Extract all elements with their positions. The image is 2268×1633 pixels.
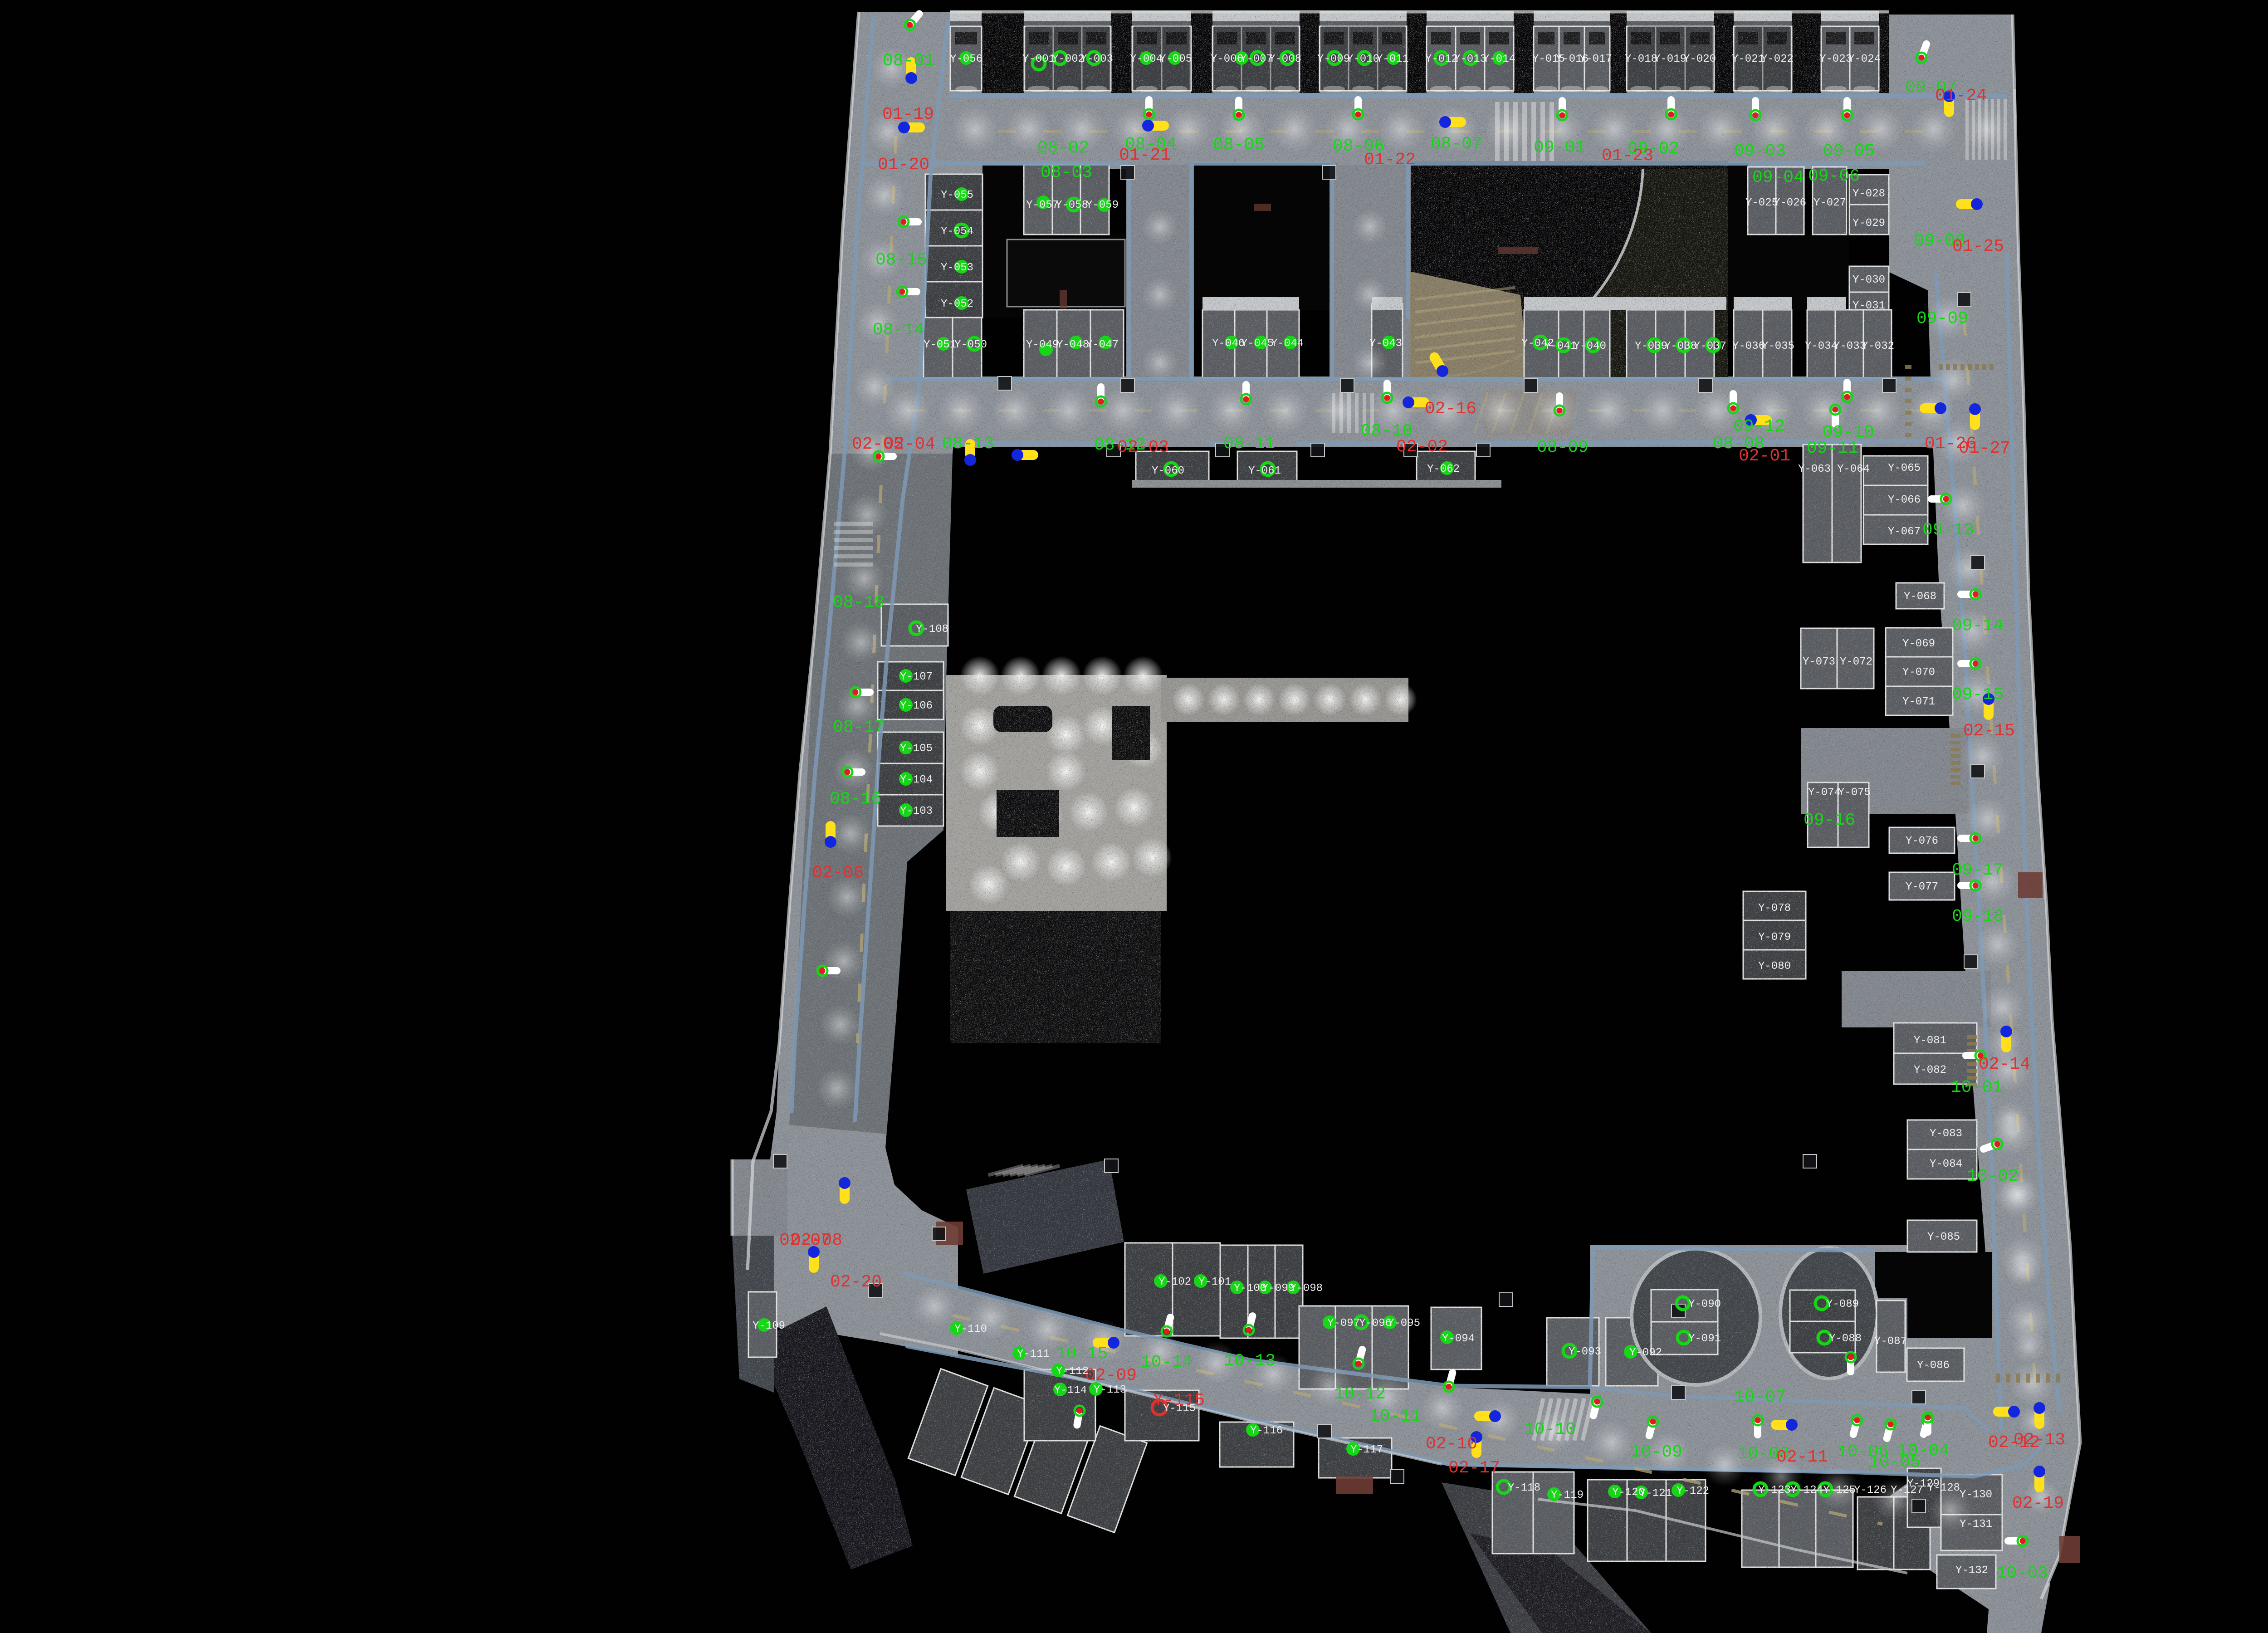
svg-text:01-25: 01-25 [1952, 237, 2004, 256]
svg-text:Y-038: Y-038 [1664, 340, 1697, 352]
svg-text:Y-088: Y-088 [1829, 1333, 1862, 1345]
svg-text:02-08: 02-08 [791, 1231, 842, 1250]
svg-text:Y-090: Y-090 [1688, 1298, 1721, 1310]
svg-text:Y-077: Y-077 [1906, 881, 1938, 893]
svg-text:10-11: 10-11 [1369, 1407, 1421, 1426]
svg-text:Y-037: Y-037 [1694, 340, 1726, 352]
svg-text:Y-084: Y-084 [1930, 1158, 1962, 1170]
svg-text:Y-005: Y-005 [1159, 53, 1192, 65]
svg-text:Y-044: Y-044 [1271, 337, 1304, 350]
svg-text:09-18: 09-18 [1952, 907, 2004, 926]
svg-text:Y-024: Y-024 [1848, 53, 1881, 65]
svg-text:Y-103: Y-103 [900, 805, 933, 817]
svg-text:02-13: 02-13 [2014, 1430, 2065, 1450]
svg-text:Y-126: Y-126 [1854, 1484, 1887, 1496]
svg-text:Y-056: Y-056 [950, 53, 982, 65]
svg-text:Y-014: Y-014 [1483, 53, 1515, 65]
svg-text:08-07: 08-07 [1431, 134, 1482, 154]
svg-text:Y-069: Y-069 [1902, 638, 1935, 650]
svg-text:08-02: 08-02 [1037, 138, 1089, 158]
svg-text:Y-121: Y-121 [1639, 1487, 1672, 1500]
svg-text:02-19: 02-19 [2012, 1494, 2064, 1513]
svg-text:09-15: 09-15 [1952, 685, 2004, 704]
svg-text:02-17: 02-17 [1448, 1458, 1500, 1478]
svg-text:Y-029: Y-029 [1853, 217, 1885, 230]
svg-text:Y-089: Y-089 [1826, 1298, 1859, 1310]
svg-text:Y-013: Y-013 [1454, 53, 1486, 65]
svg-text:Y-113: Y-113 [1094, 1384, 1126, 1396]
svg-text:Y-017: Y-017 [1579, 53, 1612, 65]
svg-text:02-16: 02-16 [1425, 399, 1476, 419]
svg-text:Y-106: Y-106 [900, 700, 933, 712]
svg-text:10-07: 10-07 [1734, 1388, 1786, 1407]
svg-text:Y-081: Y-081 [1914, 1035, 1946, 1047]
svg-text:Y-061: Y-061 [1248, 465, 1281, 477]
svg-text:Y-114: Y-114 [1054, 1384, 1087, 1397]
svg-text:Y-085: Y-085 [1927, 1231, 1960, 1243]
svg-text:09-06: 09-06 [1808, 166, 1860, 186]
svg-text:10-10: 10-10 [1524, 1420, 1576, 1439]
svg-text:Y-020: Y-020 [1683, 53, 1716, 65]
svg-text:Y-054: Y-054 [941, 225, 973, 238]
svg-text:Y-032: Y-032 [1862, 340, 1894, 352]
svg-text:Y-047: Y-047 [1086, 339, 1119, 351]
svg-text:Y-003: Y-003 [1080, 53, 1113, 65]
svg-text:Y-112: Y-112 [1056, 1365, 1089, 1378]
svg-text:01-22: 01-22 [1364, 150, 1416, 170]
svg-text:Y-104: Y-104 [900, 774, 933, 786]
svg-text:Y-079: Y-079 [1758, 931, 1791, 944]
svg-text:Y-101: Y-101 [1198, 1276, 1231, 1288]
svg-text:Y-078: Y-078 [1758, 902, 1791, 914]
svg-text:10-14: 10-14 [1141, 1353, 1193, 1372]
svg-text:Y-130: Y-130 [1960, 1489, 1992, 1501]
svg-text:Y-055: Y-055 [941, 189, 973, 201]
svg-text:09-05: 09-05 [1823, 142, 1875, 161]
svg-text:Y-009: Y-009 [1317, 53, 1350, 65]
svg-text:08-03: 08-03 [1041, 163, 1092, 182]
svg-text:Y-019: Y-019 [1654, 53, 1686, 65]
svg-text:Y-095: Y-095 [1388, 1317, 1420, 1330]
svg-text:Y-048: Y-048 [1056, 339, 1089, 351]
svg-text:01-27: 01-27 [1959, 439, 2010, 458]
svg-text:09-03: 09-03 [1734, 142, 1786, 161]
svg-text:Y-093: Y-093 [1569, 1346, 1601, 1358]
svg-text:Y-008: Y-008 [1269, 53, 1301, 65]
svg-text:09-11: 09-11 [1807, 439, 1858, 458]
svg-text:Y-027: Y-027 [1813, 197, 1846, 209]
svg-text:Y-057: Y-057 [1026, 199, 1059, 211]
svg-text:09-17: 09-17 [1952, 861, 2004, 880]
svg-text:Y-011: Y-011 [1376, 53, 1409, 65]
svg-text:Y-041: Y-041 [1544, 340, 1577, 352]
svg-text:Y-066: Y-066 [1888, 494, 1921, 506]
svg-text:Y-028: Y-028 [1853, 188, 1885, 200]
svg-text:02-04: 02-04 [884, 435, 935, 454]
svg-text:Y-117: Y-117 [1350, 1444, 1383, 1456]
svg-text:10-15: 10-15 [1056, 1344, 1108, 1364]
svg-text:Y-002: Y-002 [1052, 53, 1085, 65]
svg-text:10-12: 10-12 [1334, 1384, 1386, 1404]
svg-text:Y-021: Y-021 [1732, 53, 1765, 65]
svg-text:01-20: 01-20 [878, 155, 929, 175]
svg-text:Y-007: Y-007 [1240, 53, 1273, 65]
svg-text:Y-006: Y-006 [1211, 53, 1243, 65]
svg-text:Y-063: Y-063 [1798, 463, 1831, 475]
svg-text:Y-023: Y-023 [1819, 53, 1852, 65]
svg-text:Y-100: Y-100 [1234, 1282, 1266, 1295]
svg-text:02-03: 02-03 [1117, 438, 1169, 457]
svg-text:Y-070: Y-070 [1902, 666, 1935, 679]
svg-text:Y-129: Y-129 [1907, 1478, 1940, 1490]
svg-text:08-15: 08-15 [875, 250, 927, 270]
svg-text:Y-075: Y-075 [1838, 787, 1871, 799]
svg-text:Y-052: Y-052 [941, 298, 973, 310]
svg-text:02-01: 02-01 [1739, 446, 1790, 466]
svg-text:Y-065: Y-065 [1888, 462, 1921, 474]
svg-text:02-14: 02-14 [1979, 1055, 2030, 1074]
svg-text:01-19: 01-19 [882, 105, 934, 124]
svg-text:Y-083: Y-083 [1930, 1128, 1962, 1140]
svg-text:Y-062: Y-062 [1427, 463, 1460, 475]
svg-text:Y-004: Y-004 [1130, 53, 1163, 65]
svg-text:Y-058: Y-058 [1056, 199, 1088, 211]
svg-text:08-17: 08-17 [833, 718, 885, 737]
svg-text:09-12: 09-12 [1733, 417, 1785, 436]
svg-text:09-13: 09-13 [1922, 520, 1974, 540]
svg-text:Y-080: Y-080 [1758, 960, 1791, 973]
svg-text:01-21: 01-21 [1119, 146, 1171, 165]
svg-text:09-09: 09-09 [1916, 309, 1968, 328]
svg-text:Y-099: Y-099 [1262, 1282, 1295, 1295]
svg-text:Y-105: Y-105 [900, 743, 933, 755]
svg-text:01-24: 01-24 [1935, 86, 1987, 106]
svg-text:02-06: 02-06 [812, 863, 864, 883]
svg-text:Y-110: Y-110 [954, 1323, 987, 1335]
svg-text:Y-087: Y-087 [1874, 1335, 1907, 1348]
svg-text:Y-067: Y-067 [1888, 526, 1921, 538]
svg-text:Y-109: Y-109 [753, 1320, 785, 1332]
svg-text:09-04: 09-04 [1752, 168, 1804, 187]
svg-text:Y-115: Y-115 [1163, 1403, 1196, 1415]
svg-text:Y-022: Y-022 [1761, 53, 1794, 65]
svg-text:Y-123: Y-123 [1758, 1484, 1791, 1496]
svg-text:01-23: 01-23 [1602, 146, 1653, 166]
svg-text:Y-010: Y-010 [1347, 53, 1379, 65]
svg-text:Y-072: Y-072 [1840, 656, 1872, 668]
svg-text:Y-118: Y-118 [1508, 1482, 1540, 1494]
svg-text:10-09: 10-09 [1631, 1442, 1682, 1462]
svg-text:Y-097: Y-097 [1327, 1317, 1360, 1330]
svg-text:Y-064: Y-064 [1837, 463, 1870, 475]
svg-text:Y-040: Y-040 [1574, 340, 1606, 352]
svg-text:Y-049: Y-049 [1026, 339, 1059, 351]
svg-text:Y-098: Y-098 [1290, 1282, 1323, 1295]
svg-text:02-10: 02-10 [1426, 1434, 1477, 1454]
svg-text:Y-045: Y-045 [1241, 337, 1274, 350]
svg-text:Y-119: Y-119 [1551, 1489, 1584, 1501]
svg-text:Y-073: Y-073 [1803, 656, 1835, 668]
svg-text:Y-071: Y-071 [1902, 696, 1935, 708]
svg-text:09-16: 09-16 [1804, 811, 1855, 830]
svg-text:Y-111: Y-111 [1017, 1348, 1050, 1360]
svg-text:Y-051: Y-051 [924, 339, 956, 351]
svg-text:Y-096: Y-096 [1359, 1317, 1392, 1330]
svg-text:08-09: 08-09 [1537, 438, 1589, 457]
svg-text:Y-091: Y-091 [1688, 1333, 1721, 1345]
svg-text:Y-053: Y-053 [941, 262, 973, 274]
svg-text:Y-035: Y-035 [1762, 340, 1794, 352]
svg-text:Y-125: Y-125 [1823, 1484, 1856, 1496]
svg-text:Y-031: Y-031 [1853, 300, 1885, 312]
svg-text:Y-116: Y-116 [1250, 1425, 1283, 1437]
svg-text:Y-122: Y-122 [1677, 1485, 1709, 1497]
svg-text:02-15: 02-15 [1963, 721, 2015, 741]
svg-text:Y-102: Y-102 [1158, 1276, 1191, 1288]
svg-text:08-14: 08-14 [873, 320, 924, 340]
svg-text:08-13: 08-13 [942, 434, 994, 454]
svg-text:08-16: 08-16 [830, 789, 881, 809]
svg-text:Y-094: Y-094 [1442, 1333, 1475, 1345]
svg-text:Y-036: Y-036 [1732, 340, 1765, 352]
svg-text:02-02: 02-02 [1396, 437, 1448, 457]
svg-text:Y-132: Y-132 [1955, 1565, 1988, 1577]
svg-text:Y-012: Y-012 [1425, 53, 1458, 65]
svg-text:Y-001: Y-001 [1022, 53, 1055, 65]
svg-text:08-05: 08-05 [1213, 135, 1265, 155]
svg-text:02-11: 02-11 [1776, 1447, 1828, 1467]
svg-text:Y-107: Y-107 [900, 671, 933, 683]
svg-text:Y-043: Y-043 [1369, 337, 1402, 350]
svg-text:Y-076: Y-076 [1906, 835, 1938, 847]
svg-text:10-13: 10-13 [1224, 1351, 1276, 1371]
svg-text:Y-018: Y-018 [1625, 53, 1657, 65]
svg-text:Y-124: Y-124 [1790, 1484, 1823, 1496]
svg-text:Y-092: Y-092 [1629, 1347, 1662, 1359]
svg-text:Y-034: Y-034 [1805, 340, 1838, 352]
svg-text:10-03: 10-03 [1996, 1564, 2048, 1583]
svg-text:08-18: 08-18 [833, 593, 885, 612]
svg-text:10-01: 10-01 [1951, 1078, 2003, 1097]
svg-text:Y-131: Y-131 [1960, 1518, 1992, 1530]
svg-text:08-11: 08-11 [1223, 434, 1275, 454]
svg-text:Y-108: Y-108 [916, 623, 948, 636]
svg-text:Y-050: Y-050 [954, 339, 987, 351]
svg-text:Y-026: Y-026 [1774, 197, 1806, 209]
svg-text:Y-068: Y-068 [1904, 591, 1936, 603]
svg-text:Y-059: Y-059 [1086, 199, 1119, 211]
svg-text:09-01: 09-01 [1534, 138, 1585, 157]
svg-text:Y-030: Y-030 [1853, 274, 1885, 286]
svg-text:Y-060: Y-060 [1152, 465, 1184, 477]
svg-text:Y-046: Y-046 [1212, 337, 1245, 350]
svg-text:02-09: 02-09 [1085, 1366, 1137, 1385]
svg-text:Y-086: Y-086 [1917, 1359, 1950, 1372]
svg-text:09-14: 09-14 [1952, 616, 2004, 636]
svg-text:02-20: 02-20 [830, 1272, 882, 1292]
svg-text:Y-082: Y-082 [1914, 1064, 1946, 1076]
svg-text:08-01: 08-01 [883, 51, 934, 71]
svg-text:Y-074: Y-074 [1808, 787, 1841, 799]
svg-text:10-06: 10-06 [1837, 1442, 1889, 1462]
svg-text:10-02: 10-02 [1967, 1167, 2019, 1186]
svg-text:Y-039: Y-039 [1635, 340, 1667, 352]
